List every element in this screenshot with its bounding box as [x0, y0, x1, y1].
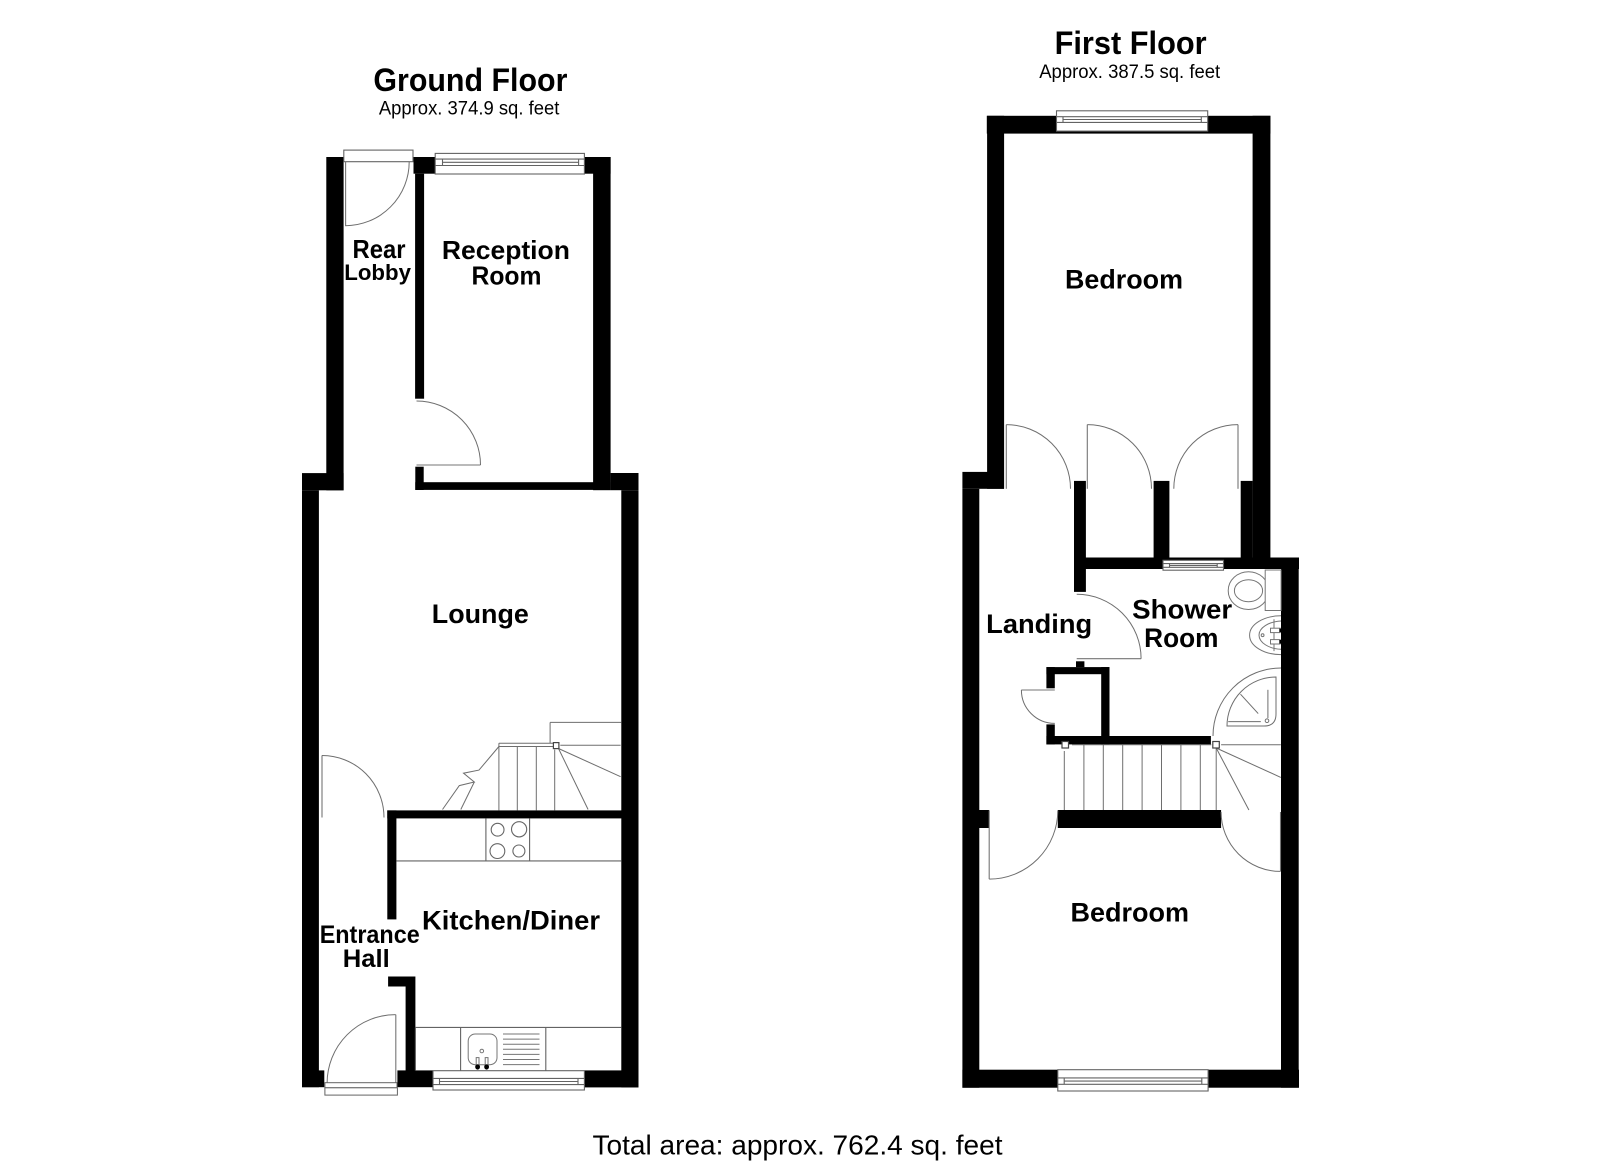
svg-text:Bedroom: Bedroom	[1071, 898, 1190, 928]
svg-text:Shower: Shower	[1132, 595, 1232, 625]
svg-text:Kitchen/Diner: Kitchen/Diner	[422, 905, 600, 935]
svg-text:Approx. 374.9 sq. feet: Approx. 374.9 sq. feet	[379, 98, 560, 119]
svg-text:Ground Floor: Ground Floor	[373, 62, 567, 98]
svg-text:Approx. 387.5 sq. feet: Approx. 387.5 sq. feet	[1039, 62, 1221, 83]
svg-text:Lobby: Lobby	[344, 260, 411, 285]
svg-text:First Floor: First Floor	[1055, 25, 1207, 61]
svg-text:Total area: approx. 762.4 sq.: Total area: approx. 762.4 sq. feet	[593, 1130, 1003, 1161]
svg-text:Landing: Landing	[986, 609, 1092, 639]
svg-text:Bedroom: Bedroom	[1065, 264, 1183, 294]
svg-text:Room: Room	[472, 261, 542, 291]
svg-text:Room: Room	[1144, 623, 1218, 653]
svg-text:Hall: Hall	[343, 945, 390, 973]
svg-text:Lounge: Lounge	[432, 599, 529, 629]
